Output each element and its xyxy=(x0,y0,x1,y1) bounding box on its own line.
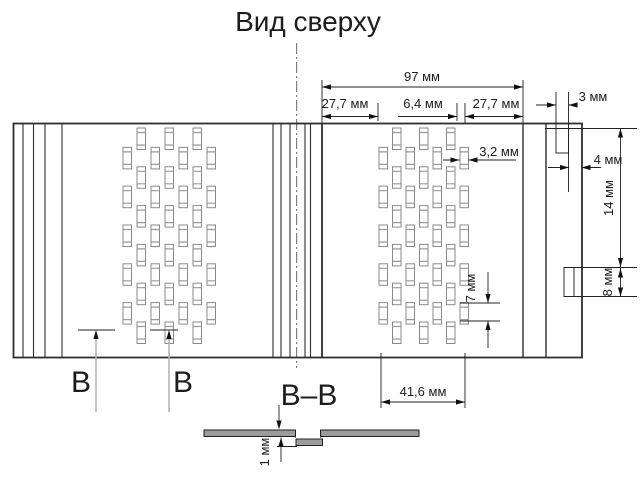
louver-slot xyxy=(447,167,456,189)
louver-slot xyxy=(123,264,132,286)
louver-slot-fields xyxy=(123,128,469,344)
section-marker-right: В xyxy=(173,366,193,399)
louver-slot xyxy=(207,225,216,247)
louver-slot xyxy=(447,244,456,266)
louver-slot xyxy=(179,264,188,286)
louver-slot xyxy=(123,147,132,169)
arrowhead xyxy=(618,258,623,267)
louver-slot xyxy=(393,283,402,305)
louver-slot xyxy=(460,225,469,247)
louver-slot xyxy=(406,225,415,247)
dim-margin-left: 27,7 мм xyxy=(322,96,369,111)
edge-tab-top xyxy=(556,124,569,154)
louver-slot xyxy=(137,244,146,266)
louver-slot xyxy=(151,303,160,325)
louver-slot xyxy=(420,206,429,228)
dim-tab2-length: 8 мм xyxy=(600,268,615,297)
section-plane-lines xyxy=(96,333,169,412)
louver-slot xyxy=(379,186,388,208)
louver-slot xyxy=(165,167,174,189)
louver-slot xyxy=(433,303,442,325)
louver-slot xyxy=(433,147,442,169)
louver-slot xyxy=(420,128,429,150)
dim-overall-width: 97 мм xyxy=(404,69,440,84)
louver-slot xyxy=(406,186,415,208)
arrowhead xyxy=(322,114,331,119)
right-fold-lines xyxy=(523,124,546,358)
arrowhead xyxy=(485,294,490,303)
louver-slot xyxy=(193,167,202,189)
louver-slot xyxy=(460,147,469,169)
section-marker-left: В xyxy=(71,366,91,399)
center-joint-lines xyxy=(273,124,311,358)
louver-slot xyxy=(165,128,174,150)
dim-margin-right: 27,7 мм xyxy=(473,96,520,111)
louver-slot xyxy=(420,167,429,189)
louver-slot xyxy=(193,244,202,266)
louver-slot xyxy=(193,322,202,344)
louver-slot xyxy=(447,322,456,344)
louver-slot xyxy=(207,147,216,169)
louver-slot xyxy=(193,128,202,150)
louver-slot xyxy=(420,283,429,305)
arrowhead xyxy=(618,129,623,138)
arrowhead xyxy=(381,399,390,404)
louver-slot xyxy=(179,303,188,325)
dim-slot-gap: 6,4 мм xyxy=(403,96,443,111)
section-slot-gap xyxy=(296,429,321,438)
louver-slot xyxy=(165,244,174,266)
dim-slot-length: 7 мм xyxy=(463,274,478,303)
louver-slot xyxy=(123,225,132,247)
left-fold-lines xyxy=(23,124,62,358)
louver-slot xyxy=(379,264,388,286)
section-view-label: В–В xyxy=(281,379,338,412)
arrowhead xyxy=(569,102,578,107)
dimension-lines xyxy=(78,80,637,462)
louver-slot xyxy=(393,128,402,150)
louver-slot xyxy=(433,225,442,247)
dim-louver-drop: 1 мм xyxy=(257,438,272,467)
edge-tab-bottom xyxy=(564,268,582,297)
louver-slot xyxy=(393,322,402,344)
louver-slot xyxy=(460,186,469,208)
louver-slot xyxy=(179,186,188,208)
arrowhead xyxy=(369,114,378,119)
dim-edge-offset: 3 мм xyxy=(579,89,608,104)
louver-slot xyxy=(207,264,216,286)
arrowhead xyxy=(276,421,281,430)
louver-slot xyxy=(406,264,415,286)
arrowhead xyxy=(93,330,98,339)
arrowhead xyxy=(618,269,623,278)
louver-slot xyxy=(165,206,174,228)
louver-slot xyxy=(137,167,146,189)
louver-slot xyxy=(447,128,456,150)
louver-slot xyxy=(379,147,388,169)
louver-slot xyxy=(393,167,402,189)
louver-slot xyxy=(420,322,429,344)
technical-drawing: Вид сверху 97 мм 27,7 мм 6,4 мм 27,7 мм … xyxy=(0,0,640,480)
louver-slot xyxy=(393,206,402,228)
louver-slot xyxy=(179,147,188,169)
arrowhead xyxy=(485,321,490,330)
louver-slot xyxy=(179,225,188,247)
louver-slot xyxy=(447,283,456,305)
arrowhead xyxy=(456,399,465,404)
louver-slot xyxy=(207,186,216,208)
louver-slot xyxy=(151,225,160,247)
louver-slot xyxy=(137,322,146,344)
louver-slot xyxy=(406,147,415,169)
arrowhead xyxy=(451,157,460,162)
arrowhead xyxy=(469,157,478,162)
louver-slot xyxy=(379,225,388,247)
louver-slot xyxy=(151,264,160,286)
louver-slot xyxy=(137,128,146,150)
arrowhead xyxy=(514,114,523,119)
louver-slot xyxy=(193,206,202,228)
louver-slot xyxy=(137,206,146,228)
section-louver-flap xyxy=(296,439,323,446)
arrowhead xyxy=(465,114,474,119)
arrowhead xyxy=(560,165,569,170)
louver-slot xyxy=(123,303,132,325)
arrowhead xyxy=(547,102,556,107)
louver-slot xyxy=(433,264,442,286)
louver-slot xyxy=(165,283,174,305)
section-view xyxy=(204,429,419,446)
louver-slot xyxy=(447,206,456,228)
louver-slot xyxy=(406,303,415,325)
arrowhead xyxy=(618,288,623,297)
louver-slot xyxy=(151,186,160,208)
arrowhead xyxy=(514,84,523,89)
louver-slot xyxy=(420,244,429,266)
view-title: Вид сверху xyxy=(235,6,381,37)
louver-slot xyxy=(393,244,402,266)
louver-slot xyxy=(137,283,146,305)
dim-tab1-length: 14 мм xyxy=(601,180,616,216)
louver-slot xyxy=(207,303,216,325)
louver-slot xyxy=(379,303,388,325)
louver-slot xyxy=(151,147,160,169)
arrowhead xyxy=(322,84,331,89)
louver-slot xyxy=(123,186,132,208)
louver-slot xyxy=(433,186,442,208)
dim-slot-width: 3,2 мм xyxy=(479,144,519,159)
arrowhead xyxy=(448,114,457,119)
dim-field-width: 41,6 мм xyxy=(400,384,447,399)
arrowhead xyxy=(278,438,283,447)
dim-tab-width: 4 мм xyxy=(594,152,623,167)
louver-slot xyxy=(193,283,202,305)
